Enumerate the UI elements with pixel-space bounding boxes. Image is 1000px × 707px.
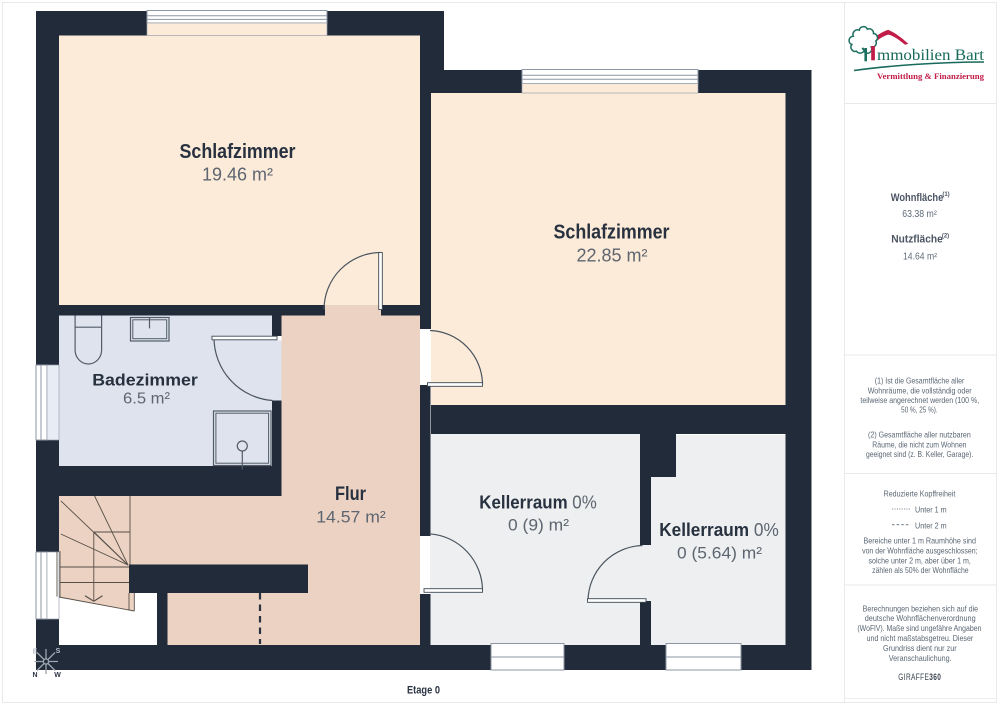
svg-text:Schlafzimmer: Schlafzimmer [180, 141, 296, 163]
svg-text:(1) Ist die Gesamtfläche aller: (1) Ist die Gesamtfläche aller [875, 376, 965, 386]
svg-text:Nutzfläche: Nutzfläche [891, 233, 943, 245]
svg-text:50 %, 25 %).: 50 %, 25 %). [901, 405, 938, 415]
svg-text:N: N [32, 672, 37, 679]
svg-text:von der Wohnfläche ausgeschlos: von der Wohnfläche ausgeschlossen; [862, 545, 977, 555]
svg-text:geeignet sind (z. B. Keller, G: geeignet sind (z. B. Keller, Garage). [866, 449, 973, 459]
svg-text:22.85 m²: 22.85 m² [577, 246, 648, 266]
svg-text:Räume, die nicht zum Wohnen: Räume, die nicht zum Wohnen [872, 439, 966, 449]
svg-text:Flur: Flur [335, 484, 367, 505]
svg-text:Schlafzimmer: Schlafzimmer [554, 222, 670, 244]
svg-text:W: W [54, 672, 61, 679]
svg-text:GIRAFFE360: GIRAFFE360 [898, 672, 941, 682]
svg-text:(2): (2) [942, 234, 949, 240]
svg-text:0 (9) m²: 0 (9) m² [508, 516, 569, 535]
svg-text:Unter 2 m: Unter 2 m [915, 520, 947, 530]
svg-text:6.5 m²: 6.5 m² [123, 391, 171, 408]
svg-text:Kellerraum 0%: Kellerraum 0% [659, 519, 779, 540]
svg-text:teilweise angerechnet werden (: teilweise angerechnet werden (100 %, [860, 395, 979, 405]
svg-text:und nicht maßstabsgetreu. Dies: und nicht maßstabsgetreu. Dieser [867, 633, 974, 643]
svg-text:Vermittlung & Finanzierung: Vermittlung & Finanzierung [877, 71, 985, 81]
svg-text:14.64 m²: 14.64 m² [903, 251, 938, 262]
svg-text:Unter 1 m: Unter 1 m [915, 505, 947, 515]
svg-text:Reduzierte Kopffreiheit: Reduzierte Kopffreiheit [884, 489, 956, 499]
svg-text:Kellerraum 0%: Kellerraum 0% [479, 492, 597, 513]
svg-text:Berechnungen beziehen sich auf: Berechnungen beziehen sich auf die [863, 603, 979, 613]
svg-text:14.57 m²: 14.57 m² [316, 508, 386, 527]
svg-text:S: S [56, 648, 61, 655]
svg-text:Wohnräume, die vollständig ode: Wohnräume, die vollständig oder [868, 385, 972, 395]
svg-text:0 (5.64) m²: 0 (5.64) m² [677, 544, 762, 563]
svg-text:Badezimmer: Badezimmer [92, 371, 198, 390]
svg-text:E: E [33, 649, 38, 656]
svg-text:19.46 m²: 19.46 m² [202, 165, 273, 185]
svg-text:(WoFlV). Maße sind ungefähre A: (WoFlV). Maße sind ungefähre Angaben [857, 623, 981, 633]
svg-text:Etage 0: Etage 0 [407, 685, 440, 697]
svg-text:zählen als 50% der Wohnfläche: zählen als 50% der Wohnfläche [872, 565, 969, 575]
svg-text:Grundriss dient nur zur: Grundriss dient nur zur [883, 643, 957, 653]
svg-text:Bereiche unter 1 m Raumhöhe si: Bereiche unter 1 m Raumhöhe sind [864, 536, 977, 546]
svg-text:deutsche Wohnflächenverordnung: deutsche Wohnflächenverordnung [865, 613, 976, 623]
svg-text:Veranschaulichung.: Veranschaulichung. [889, 653, 952, 663]
svg-text:63.38 m²: 63.38 m² [902, 209, 937, 220]
svg-text:Wohnfläche: Wohnfläche [891, 192, 944, 204]
svg-text:(2) Gesamtfläche aller nutzbar: (2) Gesamtfläche aller nutzbaren [868, 430, 971, 440]
svg-text:(1): (1) [942, 192, 949, 198]
svg-text:solche unter 2 m, aber über 1: solche unter 2 m, aber über 1 m, [869, 555, 971, 565]
